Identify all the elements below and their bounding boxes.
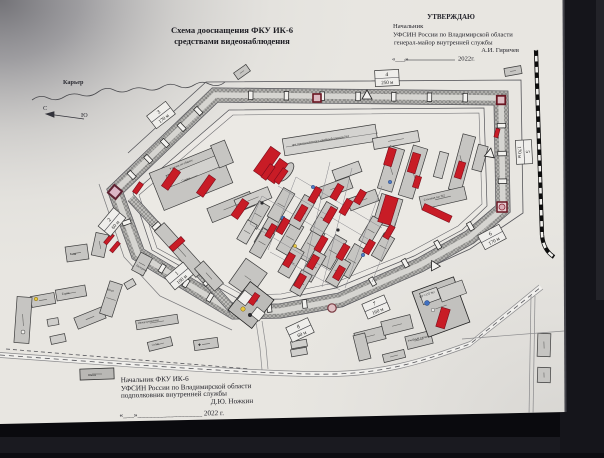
svg-text:А.И. Гиричев: А.И. Гиричев [481, 47, 519, 54]
svg-text:2022г.: 2022г. [458, 56, 475, 63]
svg-text:250 м: 250 м [381, 81, 394, 87]
svg-text:Д.Ю. Ножкин: Д.Ю. Ножкин [211, 397, 254, 406]
svg-text:Школа: Школа [88, 374, 97, 377]
svg-text:средствами видеонаблюдения: средствами видеонаблюдения [174, 36, 290, 46]
svg-text:С: С [43, 105, 47, 112]
svg-text:✚: ✚ [198, 343, 201, 347]
svg-text:УФСИН России по Владимирской о: УФСИН России по Владимирской области [393, 32, 513, 39]
svg-text:генерал-майор внутренней служб: генерал-майор внутренней службы [394, 40, 493, 47]
svg-text:Схема дооснащения ФКУ ИК-6: Схема дооснащения ФКУ ИК-6 [171, 25, 294, 35]
svg-text:УТВЕРЖДАЮ: УТВЕРЖДАЮ [427, 13, 475, 21]
svg-text:Начальник: Начальник [393, 23, 424, 30]
svg-text:Баня: Баня [70, 252, 77, 256]
svg-text:Ю: Ю [81, 112, 88, 119]
svg-text:170 м: 170 м [516, 146, 522, 159]
svg-text:Карьер: Карьер [63, 79, 84, 86]
svg-text:«___»: «___» [392, 56, 408, 63]
